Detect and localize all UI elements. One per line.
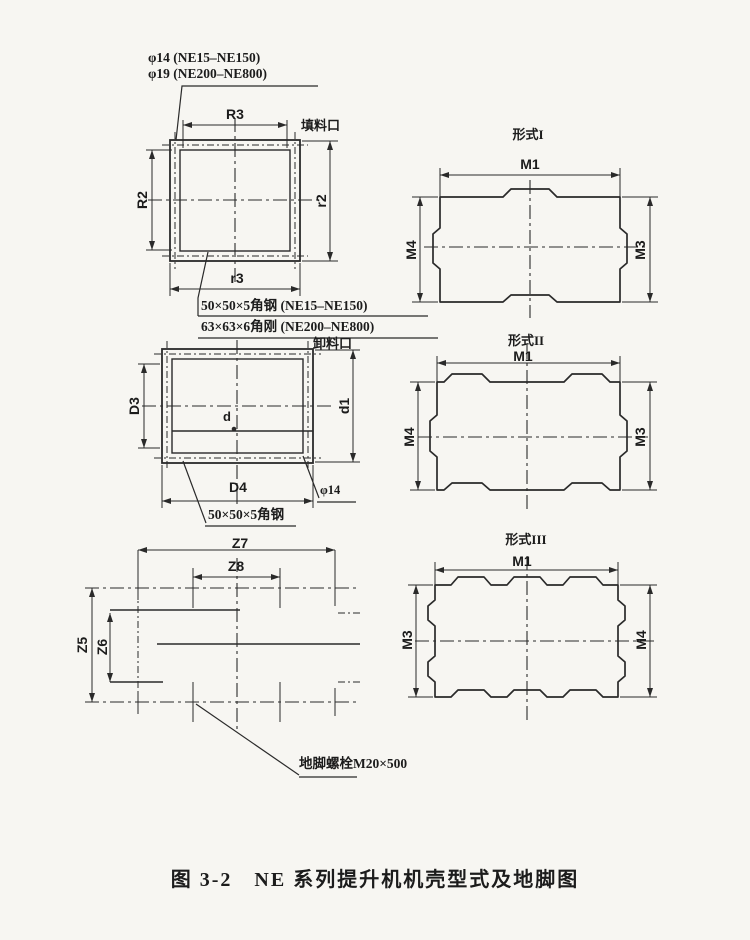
port-label-upper: 填料口 xyxy=(301,119,340,132)
dim-label-z6: Z6 xyxy=(95,639,109,655)
foundation-bolt-plan xyxy=(85,550,360,777)
hole-label-phi14: φ14 xyxy=(320,484,340,497)
dim-label-r2-right: r2 xyxy=(314,194,328,207)
form-3-title: 形式III xyxy=(505,533,546,546)
diagram-linework xyxy=(0,0,750,940)
lower-casing-flange-view xyxy=(138,340,360,526)
dim-label-z5: Z5 xyxy=(75,637,89,653)
dim-label-z7: Z7 xyxy=(232,536,248,550)
form-3-dim-m4: M4 xyxy=(634,630,648,649)
hole-note-small: φ14 (NE15–NE150) xyxy=(148,51,260,65)
angle-steel-note-large: 63×63×6角刚 (NE200–NE800) xyxy=(201,320,374,334)
dim-label-d3: D3 xyxy=(127,397,141,415)
anchor-bolt-note: 地脚螺栓M20×500 xyxy=(299,757,407,771)
dim-label-r3-top: R3 xyxy=(226,107,244,121)
form-2-title: 形式II xyxy=(508,334,544,347)
angle-steel-note-small: 50×50×5角钢 (NE15–NE150) xyxy=(201,299,368,313)
hole-note-large: φ19 (NE200–NE800) xyxy=(148,67,267,81)
casing-form-2-outline xyxy=(410,345,657,512)
dim-label-d1: d1 xyxy=(337,398,351,414)
dim-label-r2-left: R2 xyxy=(135,191,149,209)
form-2-dim-m3: M3 xyxy=(633,427,647,446)
port-label-lower: 卸料口 xyxy=(313,337,352,350)
casing-form-3-outline xyxy=(408,556,657,724)
form-3-dim-m3: M3 xyxy=(400,630,414,649)
form-1-title: 形式I xyxy=(512,128,543,141)
dim-label-r3-bottom: r3 xyxy=(230,271,243,285)
technical-figure-page: φ14 (NE15–NE150) φ19 (NE200–NE800) R3 填料… xyxy=(0,0,750,940)
form-1-dim-m3: M3 xyxy=(633,240,647,259)
form-2-dim-m4: M4 xyxy=(402,427,416,446)
form-1-dim-m4: M4 xyxy=(404,240,418,259)
form-2-dim-m1: M1 xyxy=(513,349,532,363)
dim-label-d-inner: d xyxy=(223,410,231,423)
figure-caption: 图 3-2 NE 系列提升机机壳型式及地脚图 xyxy=(171,870,579,890)
form-3-dim-m1: M1 xyxy=(512,554,531,568)
casing-form-1-outline xyxy=(412,168,658,318)
form-1-dim-m1: M1 xyxy=(520,157,539,171)
angle-steel-note-lower: 50×50×5角钢 xyxy=(208,508,284,522)
dim-label-d4: D4 xyxy=(229,480,247,494)
dim-label-z8: Z8 xyxy=(228,559,244,573)
